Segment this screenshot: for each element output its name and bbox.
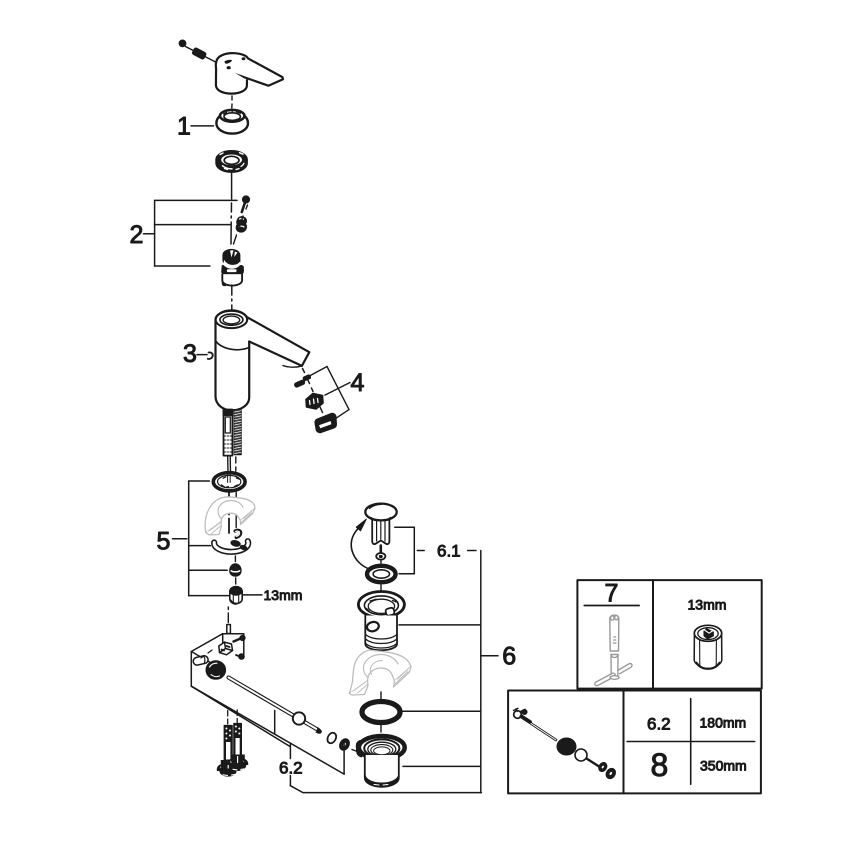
- svg-text:3: 3: [183, 340, 197, 368]
- svg-text:180mm: 180mm: [700, 715, 747, 731]
- svg-text:13mm: 13mm: [688, 597, 727, 613]
- svg-text:6.2: 6.2: [279, 759, 303, 778]
- svg-text:1: 1: [177, 113, 191, 141]
- svg-text:5: 5: [157, 528, 171, 556]
- svg-text:8: 8: [651, 747, 669, 783]
- svg-text:6.1: 6.1: [437, 542, 461, 561]
- svg-text:4: 4: [351, 369, 365, 397]
- svg-text:2: 2: [130, 221, 144, 249]
- svg-text:7: 7: [605, 580, 619, 608]
- svg-text:350mm: 350mm: [700, 758, 747, 774]
- svg-text:13mm: 13mm: [264, 587, 303, 603]
- svg-text:6.2: 6.2: [647, 715, 671, 734]
- svg-text:6: 6: [502, 643, 516, 671]
